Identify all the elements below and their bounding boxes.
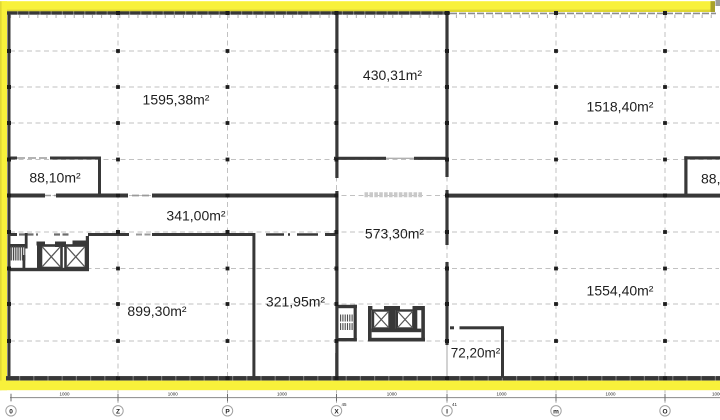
svg-text:O: O bbox=[662, 409, 667, 416]
svg-text:341,00m²: 341,00m² bbox=[166, 208, 225, 224]
svg-text:1000: 1000 bbox=[712, 391, 720, 396]
svg-text:1000: 1000 bbox=[168, 391, 179, 396]
svg-text:1000: 1000 bbox=[59, 391, 70, 396]
svg-text:1000: 1000 bbox=[605, 391, 616, 396]
svg-text:1518,40m²: 1518,40m² bbox=[587, 99, 654, 115]
svg-text:X: X bbox=[334, 409, 339, 416]
svg-text:88,: 88, bbox=[701, 171, 720, 187]
svg-text:41: 41 bbox=[452, 402, 458, 407]
svg-text:573,30m²: 573,30m² bbox=[365, 226, 424, 242]
svg-text:I: I bbox=[446, 409, 448, 416]
svg-text:72,20m²: 72,20m² bbox=[451, 346, 501, 361]
svg-text:1554,40m²: 1554,40m² bbox=[587, 283, 654, 299]
svg-text:1000: 1000 bbox=[387, 391, 398, 396]
svg-text:m: m bbox=[553, 409, 559, 416]
svg-text:1000: 1000 bbox=[496, 391, 507, 396]
svg-text:45: 45 bbox=[342, 402, 348, 407]
svg-text:0: 0 bbox=[9, 409, 13, 416]
svg-text:321,95m²: 321,95m² bbox=[266, 294, 325, 310]
svg-text:430,31m²: 430,31m² bbox=[363, 67, 422, 83]
svg-text:899,30m²: 899,30m² bbox=[127, 303, 186, 319]
svg-text:Z: Z bbox=[116, 409, 120, 416]
svg-text:1000: 1000 bbox=[277, 391, 288, 396]
svg-text:P: P bbox=[225, 409, 230, 416]
svg-text:1595,38m²: 1595,38m² bbox=[143, 92, 210, 108]
svg-text:88,10m²: 88,10m² bbox=[29, 170, 81, 186]
